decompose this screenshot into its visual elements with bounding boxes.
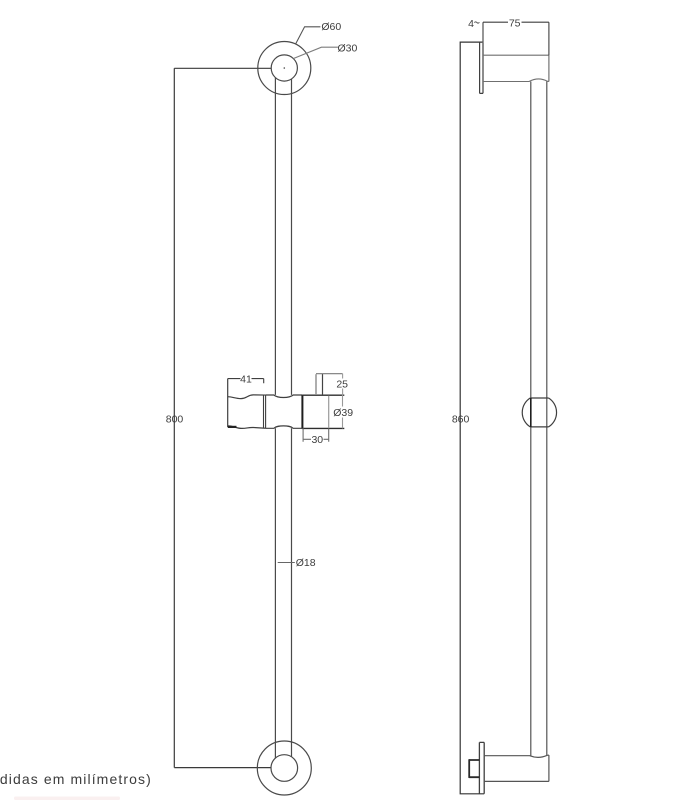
svg-text:30: 30 [311,434,323,446]
svg-text:Ø18: Ø18 [296,557,316,569]
svg-text:4: 4 [468,18,474,30]
svg-text:Ø39: Ø39 [333,407,353,419]
svg-text:Ø30: Ø30 [338,42,358,54]
svg-text:860: 860 [452,414,470,426]
svg-text:(Medidas em milímetros): (Medidas em milímetros) [0,771,152,787]
svg-text:75: 75 [509,18,521,30]
svg-text:800: 800 [166,413,184,425]
svg-text:Ø60: Ø60 [321,21,341,33]
svg-text:41: 41 [240,374,252,386]
svg-text:25: 25 [336,378,348,390]
